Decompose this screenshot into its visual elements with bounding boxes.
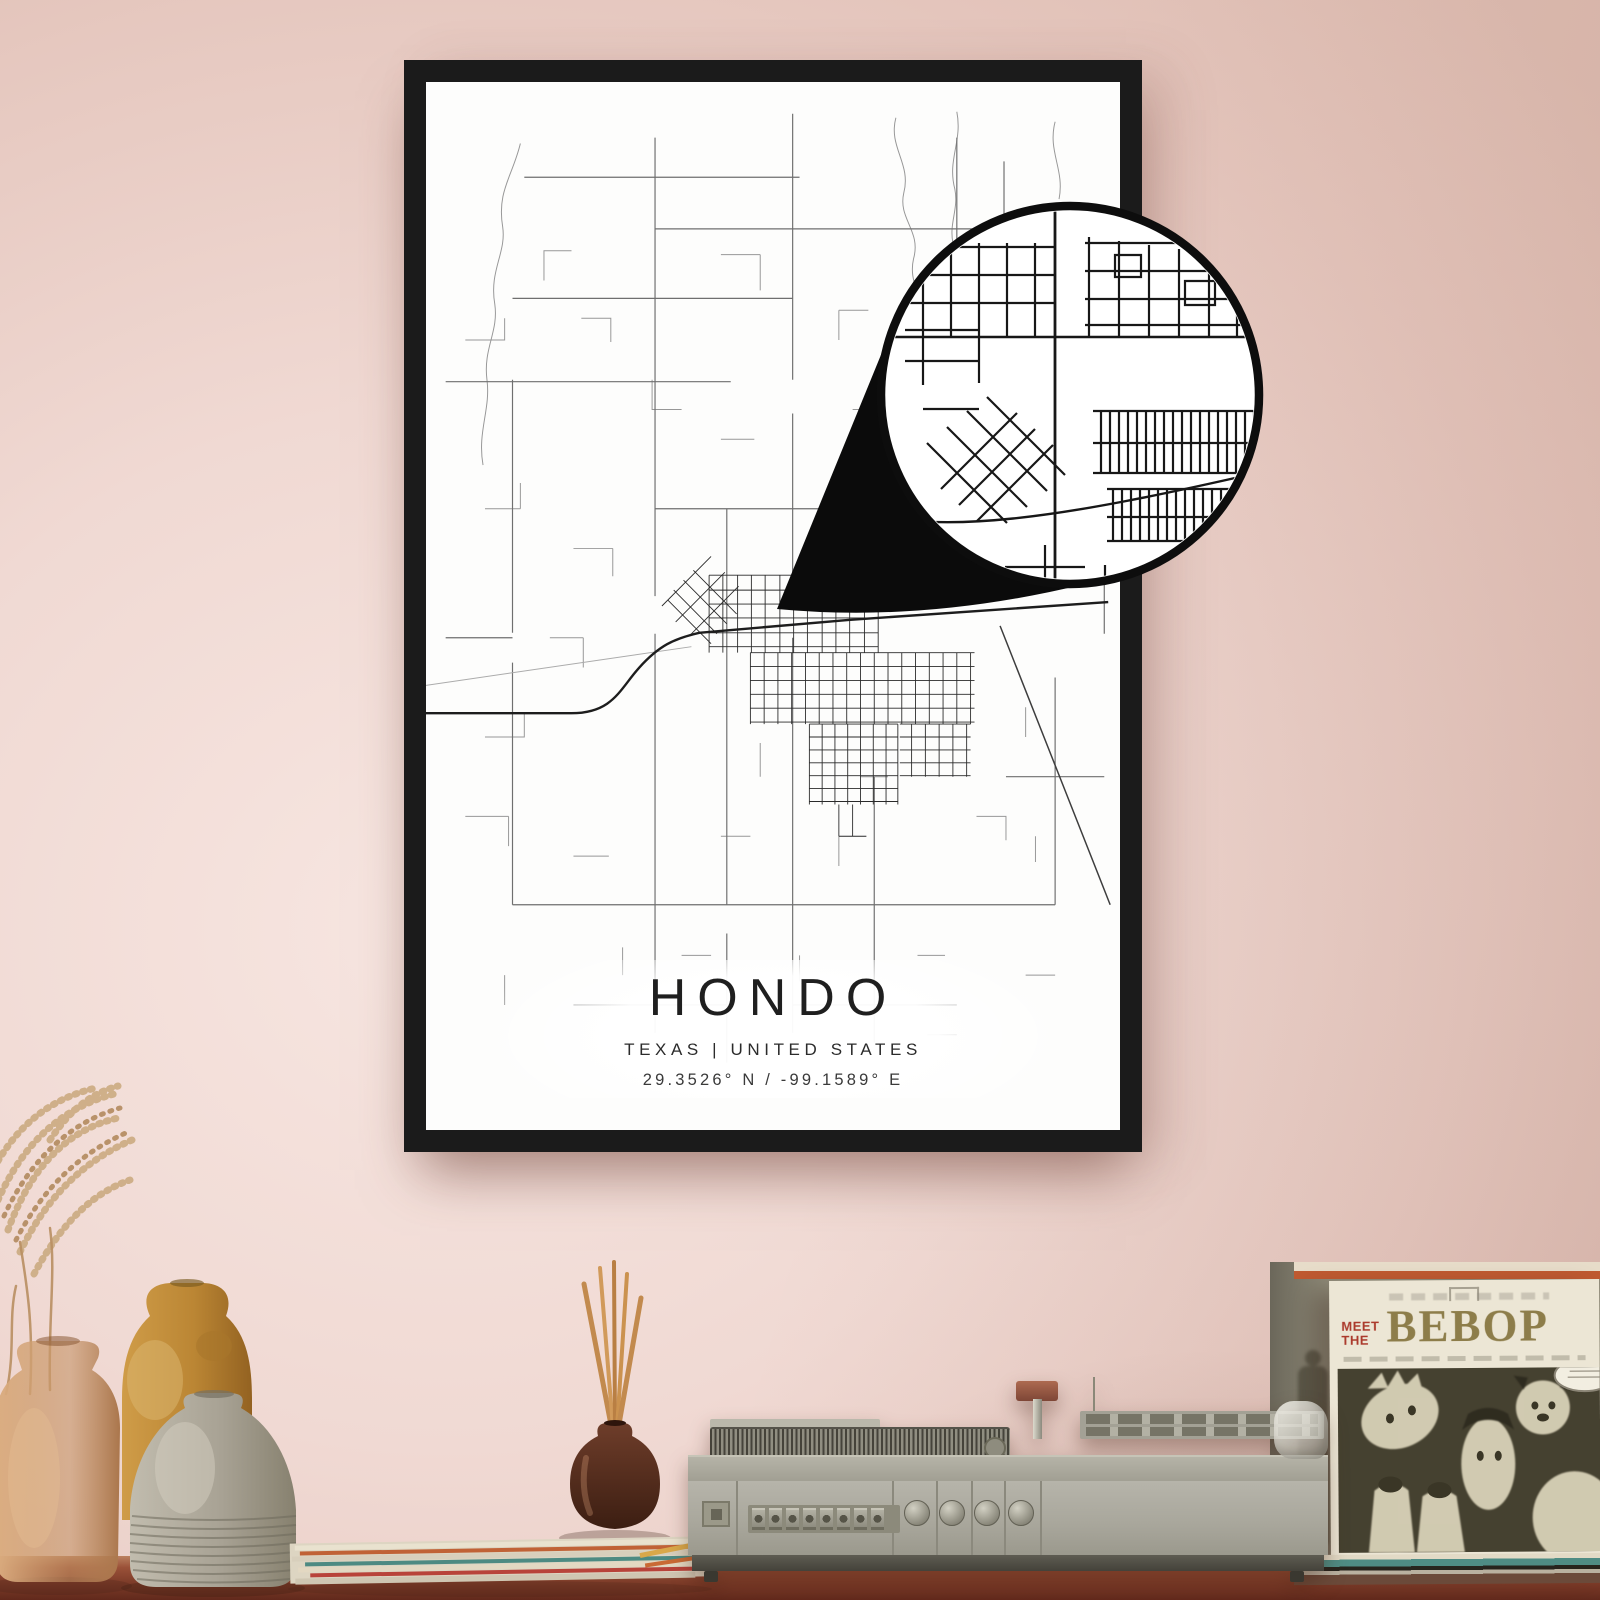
poster-subtitle: TEXAS | UNITED STATES <box>426 1040 1120 1060</box>
sleeve-pretitle-top: MEET <box>1341 1320 1379 1334</box>
power-button-face <box>711 1509 722 1520</box>
sleeve-subtext-row <box>1344 1355 1586 1362</box>
poster-title: HONDO <box>426 968 1120 1028</box>
panel-seam <box>1040 1481 1042 1555</box>
tone-knob <box>1008 1500 1034 1526</box>
record-sleeve: MEET THE BEBOP <box>1329 1279 1600 1563</box>
preset-button <box>854 1508 867 1530</box>
panel-seam <box>971 1481 973 1555</box>
vase-tan <box>0 1336 120 1582</box>
preset-button <box>803 1508 816 1530</box>
turntable <box>688 1375 1328 1585</box>
crate-orange-stripe <box>1294 1271 1600 1279</box>
glass-object <box>1274 1401 1328 1459</box>
turntable-foot <box>1290 1571 1304 1582</box>
turntable-foot <box>704 1571 718 1582</box>
preset-button <box>786 1508 799 1530</box>
sleeve-artwork <box>1338 1367 1600 1553</box>
preset-button <box>837 1508 850 1530</box>
turntable-front-panel <box>688 1481 1328 1555</box>
magnifier-circle <box>881 206 1259 584</box>
magazine-stack <box>290 1536 707 1584</box>
shelf-decor <box>0 1258 720 1600</box>
tonearm-cartridge <box>1016 1381 1058 1401</box>
sleeve-title: BEBOP <box>1386 1305 1549 1347</box>
sleeve-pretitle-bottom: THE <box>1341 1333 1379 1347</box>
tonearm-post <box>1033 1399 1042 1439</box>
sleeve-pretitle: MEET THE <box>1341 1320 1379 1348</box>
scene: HONDO TEXAS | UNITED STATES 29.3526° N /… <box>0 0 1600 1600</box>
turntable-base <box>692 1555 1324 1571</box>
panel-seam <box>1004 1481 1006 1555</box>
stacked-records <box>1294 1553 1600 1585</box>
sleeve-header: MEET THE BEBOP <box>1341 1305 1549 1347</box>
crate-top-edge <box>1294 1262 1600 1271</box>
preset-button <box>752 1508 765 1530</box>
diffuser-reeds <box>584 1262 641 1430</box>
tuning-knob <box>939 1500 965 1526</box>
preset-button-row <box>748 1505 900 1533</box>
preset-button <box>820 1508 833 1530</box>
poster-text-block: HONDO TEXAS | UNITED STATES 29.3526° N /… <box>426 960 1120 1098</box>
preset-button <box>871 1508 884 1530</box>
volume-knob <box>904 1500 930 1526</box>
sleeve-logo-glyph <box>1449 1287 1479 1301</box>
reed-diffuser <box>570 1262 660 1529</box>
sleeve-artwork-figures <box>1338 1367 1600 1553</box>
poster-coordinates: 29.3526° N / -99.1589° E <box>426 1071 1120 1090</box>
balance-knob <box>974 1500 1000 1526</box>
power-button <box>702 1501 730 1527</box>
turntable-deck-band <box>688 1455 1328 1481</box>
map-railroad <box>426 647 691 686</box>
panel-seam <box>736 1481 738 1555</box>
panel-seam <box>936 1481 938 1555</box>
magnifier-callout <box>755 185 1277 623</box>
preset-button <box>769 1508 782 1530</box>
